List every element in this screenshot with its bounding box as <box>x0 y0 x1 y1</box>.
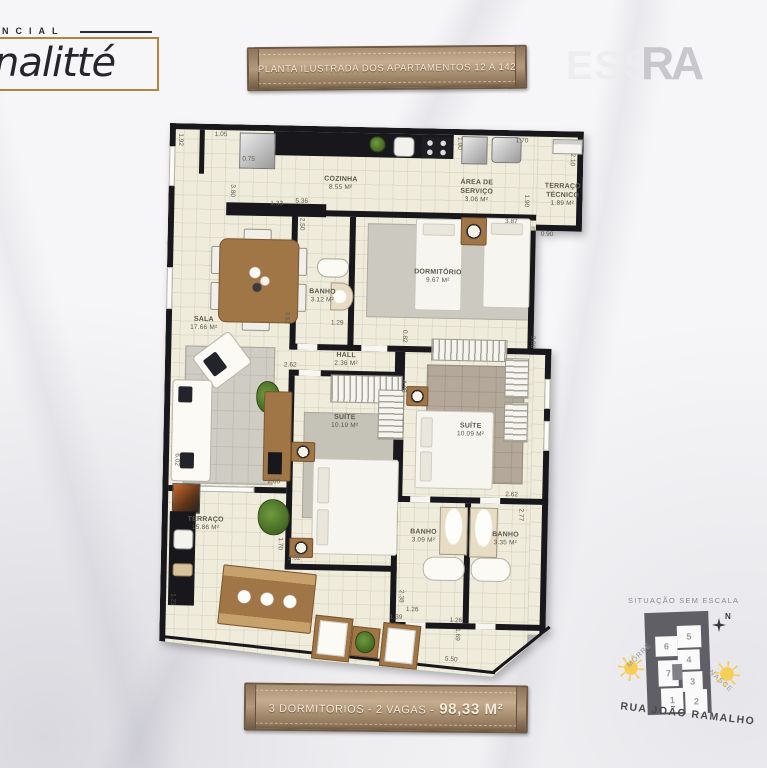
dimension-label: 6.02 <box>173 453 180 466</box>
single-bed <box>482 218 531 309</box>
door-opening <box>410 496 430 502</box>
logo-brand: nalitté <box>0 40 115 86</box>
wardrobe <box>504 358 529 398</box>
wardrobe <box>503 402 528 442</box>
room-name: BANHO <box>492 531 519 539</box>
plaque-endcap <box>515 47 525 87</box>
plant <box>257 499 290 536</box>
dimension-label: 2.10 <box>568 153 575 166</box>
washing-machine <box>461 136 488 165</box>
lot-6: 6 <box>655 636 678 657</box>
room-label-suite1: SUÍTE10.19 m² <box>331 413 359 431</box>
door-opening <box>299 370 321 376</box>
lounge-chair <box>311 615 354 663</box>
room-label-banho4: BANHO3.35 m² <box>492 530 519 548</box>
outdoor-table <box>217 564 317 634</box>
room-area: 9.67 m² <box>414 276 462 285</box>
wall-art <box>172 483 201 514</box>
ac-unit <box>552 139 582 155</box>
dimension-label: 1.05 <box>215 132 228 139</box>
logo-subtitle: NCIAL <box>2 26 65 36</box>
room-area: 2.36 m² <box>334 360 358 369</box>
plaque-endcap <box>516 687 526 731</box>
room-name: SALA <box>194 316 214 323</box>
toilet <box>317 258 349 278</box>
dimension-label: 1.33 <box>270 201 283 208</box>
dimension-label: 1.70 <box>276 537 283 550</box>
pillow <box>420 417 433 447</box>
dimension-label: 1.69 <box>453 628 460 641</box>
room-label-sala: SALA17.66 m² <box>190 315 218 333</box>
door-opening <box>475 624 495 630</box>
room-area: 17.66 m² <box>190 324 217 333</box>
tv <box>268 452 282 474</box>
cushion <box>178 386 192 402</box>
plant <box>369 136 385 152</box>
room-label-suite2: SUÍTE10.09 m² <box>457 421 485 439</box>
dimension-label: 5.50 <box>444 656 457 664</box>
compass-north-label: N <box>725 612 731 621</box>
header-plaque-text: PLANTA ILUSTRADA DOS APARTAMENTOS 12 A 1… <box>258 61 516 74</box>
wall <box>199 130 205 174</box>
dimension-label: 1.29 <box>331 320 344 327</box>
cooking-pot <box>393 137 414 157</box>
dimension-label: 1.26 <box>450 618 463 625</box>
room-label-banho-social: BANHO3.12 m² <box>309 287 336 305</box>
room-area: 3.12 m² <box>309 296 336 305</box>
room-area: 8.55 m² <box>324 184 357 193</box>
lot-core <box>672 664 683 680</box>
dimension-label: 1.90 <box>522 194 529 207</box>
door-opening <box>297 344 317 350</box>
room-name: DORMITÓRIO <box>414 268 462 276</box>
room-area: 15.86 m² <box>187 524 223 533</box>
planter <box>350 626 381 659</box>
single-bed <box>414 218 463 311</box>
wardrobe <box>431 339 507 363</box>
dimension-label: 1.92 <box>177 133 184 146</box>
lot-5: 5 <box>677 625 702 648</box>
dimension-label: 2.62 <box>288 556 301 563</box>
dimension-label: 0.75 <box>242 157 255 164</box>
watermark-letter-a: A <box>671 36 704 90</box>
room-label-cozinha: COZINHA8.55 m² <box>324 174 358 192</box>
room-name: SUÍTE <box>334 414 356 421</box>
floorplan: COZINHA8.55 m² ÁREA DE SERVIÇO3.06 m² TE… <box>170 123 586 671</box>
door-opening <box>361 345 387 352</box>
room-name: TERRAÇO TÉCNICO <box>545 183 581 200</box>
logo-line <box>80 31 152 33</box>
room-label-servico: ÁREA DE SERVIÇO3.06 m² <box>453 178 500 206</box>
dimension-label: 0.82 <box>400 330 407 343</box>
footer-plaque: 3 DORMITORIOS - 2 VAGAS -98,33 M² <box>244 683 528 734</box>
cushion <box>203 351 228 377</box>
room-area: 1.89 m² <box>541 200 583 209</box>
pillow <box>420 451 433 481</box>
pillow <box>317 467 330 503</box>
tv-console <box>263 391 293 482</box>
dimension-label: 5.36 <box>295 199 308 206</box>
dimension-label: 1.21 <box>169 593 176 606</box>
double-bed <box>311 458 399 556</box>
room-name: COZINHA <box>324 175 357 183</box>
situation-plot: 6 5 4 7 3 1 2 <box>644 611 712 715</box>
plant <box>354 630 376 654</box>
window <box>544 379 551 409</box>
compass-star-icon <box>712 618 726 632</box>
room-name: BANHO <box>410 528 437 536</box>
cushion <box>180 452 194 468</box>
stove <box>421 136 451 159</box>
room-area: 10.09 m² <box>457 430 484 439</box>
dimension-label: 3.08 <box>528 336 535 349</box>
room-label-tecnico: TERRAÇO TÉCNICO1.89 m² <box>541 181 584 208</box>
watermark-ess: ESS <box>566 44 652 89</box>
dimension-label: 2.38 <box>397 590 404 603</box>
window <box>543 421 550 451</box>
room-name: HALL <box>336 352 356 359</box>
situation-title: SITUAÇÃO SEM ESCALA <box>628 596 739 605</box>
dimension-label: 1.70 <box>516 138 529 145</box>
window <box>166 267 173 309</box>
dimension-label: 2.60 <box>267 479 280 486</box>
door-opening <box>480 498 500 504</box>
cutting-board <box>173 563 193 576</box>
bathtub <box>422 556 464 581</box>
room-area: 3.35 m² <box>492 539 519 548</box>
sofa <box>171 379 213 482</box>
unit-total-area: 98,33 M² <box>439 700 503 718</box>
wardrobe <box>377 389 404 440</box>
nightstand <box>291 442 315 462</box>
room-area: 10.19 m² <box>331 422 358 431</box>
dimension-label: 3.80 <box>228 184 235 197</box>
cushion <box>384 628 416 665</box>
nightstand <box>406 386 428 406</box>
room-name: SUÍTE <box>460 422 482 429</box>
dimension-label: 3.87 <box>505 219 518 226</box>
dimension-label: 1.00 <box>456 137 463 150</box>
room-name: BANHO <box>309 288 336 296</box>
pillow <box>316 509 329 545</box>
lounge-chair <box>379 622 422 670</box>
room-label-dormitorio: DORMITÓRIO9.67 m² <box>414 267 462 286</box>
watermark-letter-r: R <box>641 36 674 90</box>
dimension-label: 2.62 <box>505 492 518 499</box>
vanity <box>439 507 468 556</box>
bathtub <box>470 557 510 582</box>
dimension-label: 2.77 <box>517 508 524 521</box>
room-label-terraco: TERRAÇO15.86 m² <box>187 515 223 533</box>
room-name: ÁREA DE SERVIÇO <box>460 179 493 196</box>
nightstand <box>461 217 488 246</box>
dimension-label: 1.39 <box>390 615 403 622</box>
room-name: TERRAÇO <box>188 516 224 524</box>
plaque-endcap <box>246 685 256 729</box>
room-label-banho3: BANHO3.09 m² <box>410 527 437 545</box>
room-label-hall: HALL2.36 m² <box>334 351 358 369</box>
fridge <box>239 132 276 169</box>
dimension-label: 3.62 <box>283 311 290 324</box>
room-area: 3.09 m² <box>410 536 437 545</box>
pillow <box>423 223 455 236</box>
dimension-label: 4.08 <box>399 380 406 393</box>
dimension-label: 2.62 <box>284 362 297 369</box>
room-area: 3.06 m² <box>453 196 499 205</box>
dimension-label: 1.26 <box>406 607 419 614</box>
dimension-label: 2.50 <box>298 218 305 231</box>
unit-summary: 3 DORMITORIOS - 2 VAGAS - <box>269 702 435 716</box>
entry-door-opening <box>169 146 176 186</box>
header-plaque: PLANTA ILUSTRADA DOS APARTAMENTOS 12 A 1… <box>247 45 527 91</box>
dimension-label: 0.90 <box>541 232 554 239</box>
cushion <box>316 620 348 657</box>
